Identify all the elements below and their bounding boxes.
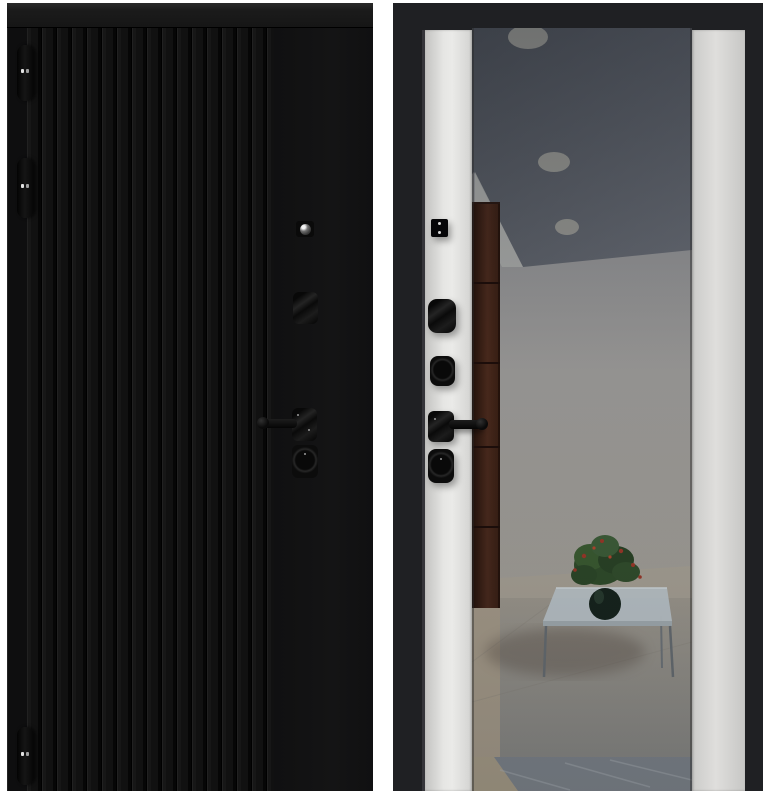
handle-ball-tip [476,418,488,430]
cylinder-peephole [296,221,314,237]
hinge-pin-icon [21,69,29,73]
door-interior-panel [393,3,763,791]
upper-lock-escutcheon [293,292,318,324]
lever-handle [263,419,297,428]
lower-thumbturn [430,356,455,386]
mirror-reflection-scene [472,28,692,791]
product-photo [0,0,767,791]
peephole-lens-icon [300,224,311,235]
hinge-pin-icon [21,752,29,756]
screw-icon [438,231,441,234]
upper-thumbturn [428,299,456,333]
hinge-top [17,45,34,101]
screw-icon [308,429,310,431]
mirror-insert [472,28,692,791]
door-lock-stile [274,28,373,791]
door-exterior-panel [7,3,373,791]
interior-panel-right [692,30,745,791]
latch-plate [431,219,448,237]
keyhole-icon [440,458,442,460]
door-top-rail [7,3,373,28]
hinge-bottom [17,727,34,785]
handle-ball-tip [257,417,269,429]
hinge-middle [17,158,34,218]
door-left-stile [7,28,28,791]
screw-icon [434,418,436,420]
hinge-pin-icon [21,184,29,188]
screw-icon [297,414,299,416]
lock-escutcheon [428,449,454,483]
mirror-tint-overlay [472,28,692,791]
screw-icon [438,222,441,225]
keyhole-icon [304,453,306,455]
lower-lock-escutcheon [292,445,318,478]
vertical-slat-panel [27,28,274,791]
lever-handle [449,420,482,429]
